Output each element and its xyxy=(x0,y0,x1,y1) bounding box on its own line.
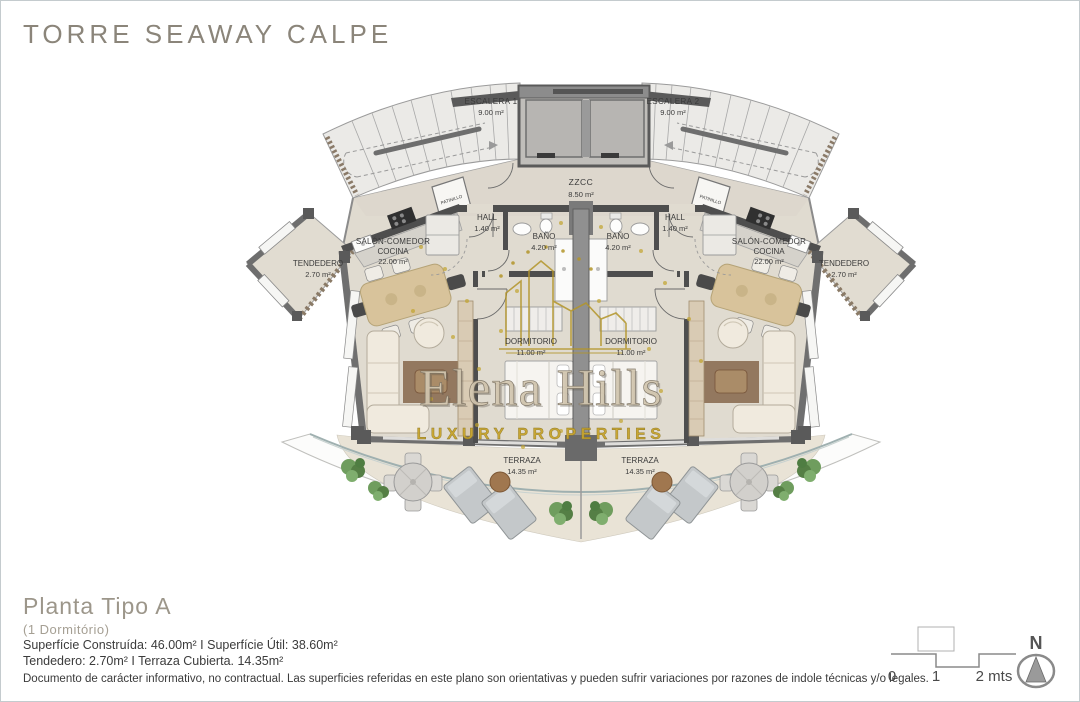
room-label-zzcc: ZZCC xyxy=(569,177,594,187)
room-label-salon-right-1: SALÓN-COMEDOR xyxy=(732,237,806,246)
room-label-hall-left: HALL xyxy=(477,213,498,222)
plan-type-subtitle: (1 Dormitório) xyxy=(23,622,172,637)
room-label-salon-left-1: SALÓN-COMEDOR xyxy=(356,237,430,246)
brand-name: Elena Hills xyxy=(419,360,663,417)
room-label-dormitorio-left: DORMITORIO xyxy=(505,337,557,346)
room-area-tendedero-left: 2.70 m² xyxy=(305,270,331,279)
room-area-zzcc: 8.50 m² xyxy=(568,190,594,199)
room-label-terraza-right: TERRAZA xyxy=(621,456,659,465)
room-area-tendedero-right: 2.70 m² xyxy=(831,270,857,279)
plant xyxy=(341,458,365,482)
room-area-hall-left: 1.40 m² xyxy=(474,224,500,233)
scale-label-2: 2 mts xyxy=(976,668,1013,685)
room-label-hall-right: HALL xyxy=(665,213,686,222)
room-label-tendedero-left: TENDEDERO xyxy=(293,259,343,268)
room-area-dormitorio-right: 11.00 m² xyxy=(616,348,646,357)
room-area-terraza-left: 14.35 m² xyxy=(507,467,537,476)
room-label-salon-left-2: COCINA xyxy=(377,247,409,256)
room-area-salon-left: 22.00 m² xyxy=(378,257,408,266)
brand-tagline: LUXURY PROPERTIES xyxy=(417,426,666,443)
room-label-terraza-left: TERRAZA xyxy=(503,456,541,465)
room-area-terraza-right: 14.35 m² xyxy=(625,467,655,476)
north-label: N xyxy=(1030,633,1043,653)
room-label-salon-right-2: COCINA xyxy=(753,247,785,256)
room-area-salon-right: 22.00 m² xyxy=(754,257,784,266)
floorplan-page: TORRE SEAWAY CALPE xyxy=(0,0,1080,702)
room-label-escalera1: ESCALERA 1 xyxy=(465,97,518,106)
surface-line-2: Tendedero: 2.70m² I Terraza Cubierta. 14… xyxy=(23,653,338,669)
north-arrow: N xyxy=(1018,633,1054,687)
room-area-escalera1: 9.00 m² xyxy=(478,108,504,117)
room-area-bano-right: 4.20 m² xyxy=(605,243,631,252)
footer-block: Planta Tipo A (1 Dormitório) xyxy=(23,593,172,637)
scale-label-1: 1 xyxy=(932,668,940,685)
room-label-dormitorio-right: DORMITORIO xyxy=(605,337,657,346)
room-label-bano-left: BAÑO xyxy=(533,232,556,241)
room-label-tendedero-right: TENDEDERO xyxy=(819,259,869,268)
plan-type-title: Planta Tipo A xyxy=(23,593,172,620)
room-area-hall-right: 1.40 m² xyxy=(662,224,688,233)
room-area-bano-left: 4.20 m² xyxy=(531,243,557,252)
room-label-escalera2: ESCALERA 2 xyxy=(647,97,700,106)
room-area-dormitorio-left: 11.00 m² xyxy=(516,348,546,357)
room-area-escalera2: 9.00 m² xyxy=(660,108,686,117)
surface-line-1: Superfície Construída: 46.00m² I Superfí… xyxy=(23,637,338,653)
room-label-bano-right: BAÑO xyxy=(607,232,630,241)
legal-disclaimer: Documento de carácter informativo, no co… xyxy=(23,673,929,685)
surface-summary: Superfície Construída: 46.00m² I Superfí… xyxy=(23,637,338,669)
